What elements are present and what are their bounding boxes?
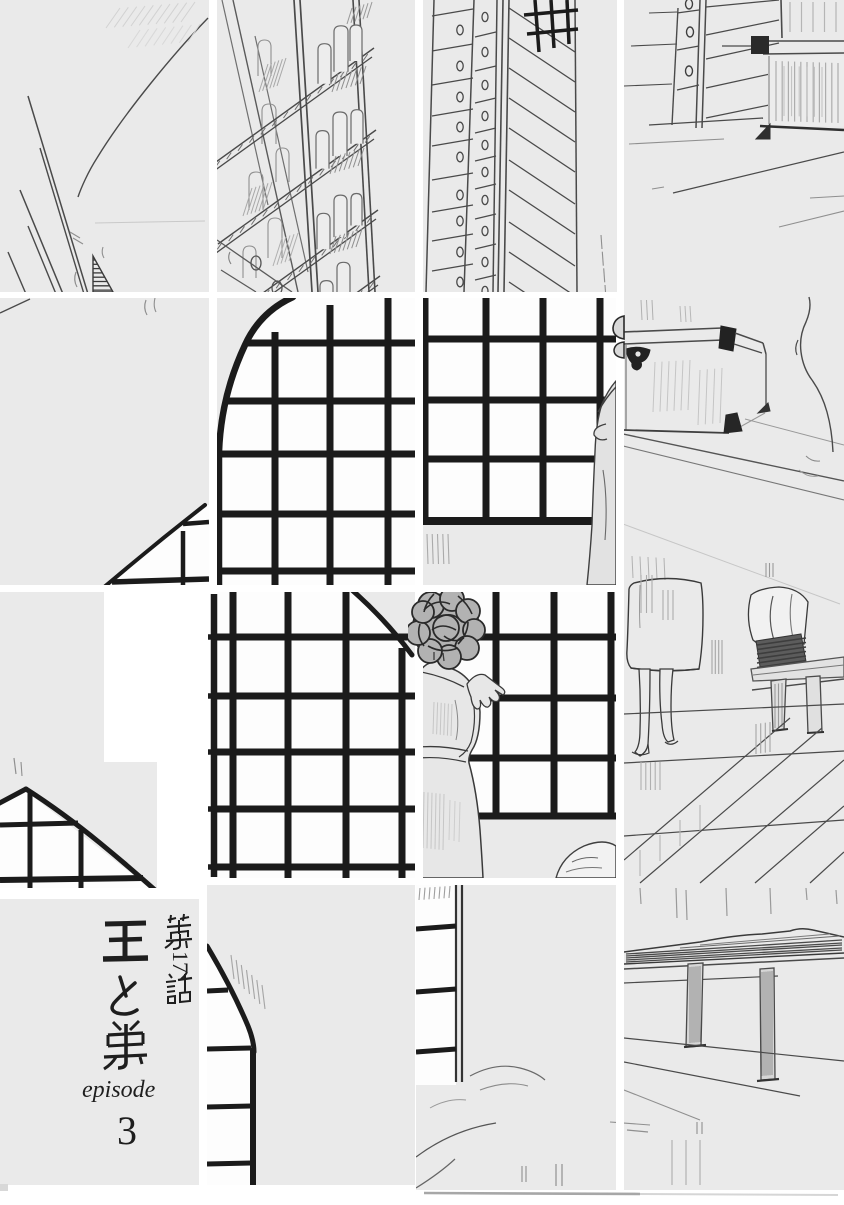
svg-text:17: 17 <box>168 951 193 973</box>
svg-text:episode: episode <box>82 1077 156 1103</box>
svg-text:3: 3 <box>117 1108 137 1153</box>
